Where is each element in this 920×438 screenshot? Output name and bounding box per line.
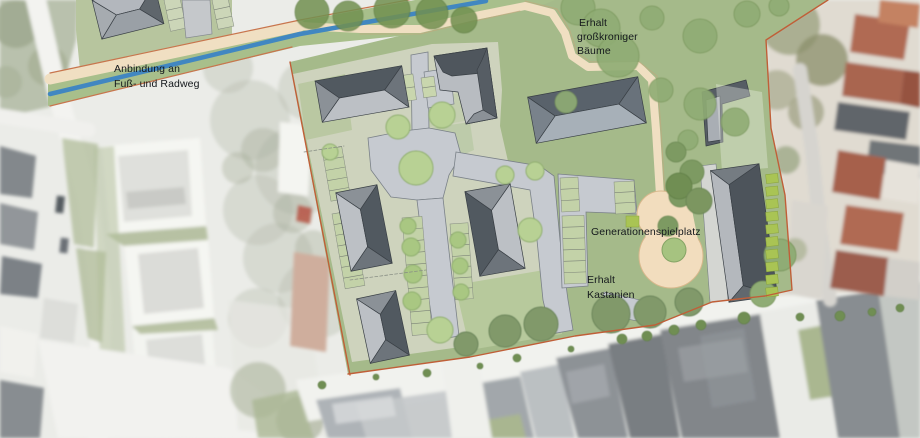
svg-text:Erhalt: Erhalt: [587, 274, 615, 286]
svg-text:Erhalt: Erhalt: [579, 17, 607, 29]
svg-text:Kastanien: Kastanien: [587, 289, 635, 301]
svg-text:Generationenspielplatz: Generationenspielplatz: [591, 226, 701, 238]
svg-text:großkroniger: großkroniger: [577, 31, 638, 43]
svg-text:Bäume: Bäume: [577, 45, 611, 57]
svg-text:Anbindung an: Anbindung an: [114, 63, 180, 75]
svg-text:Fuß- und Radweg: Fuß- und Radweg: [114, 78, 200, 90]
